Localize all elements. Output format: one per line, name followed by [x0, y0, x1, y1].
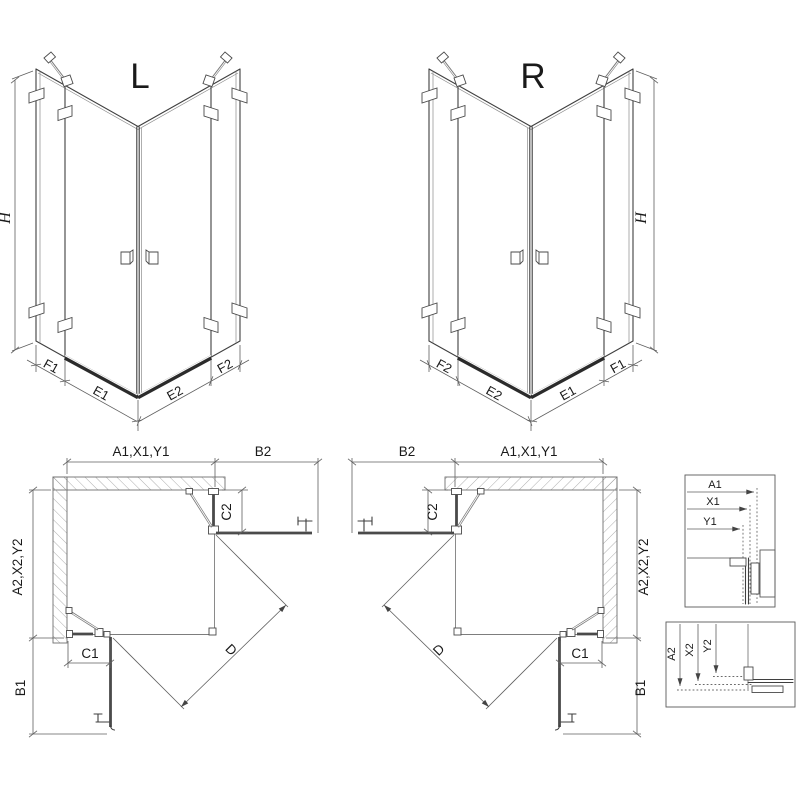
dim-label-c1: C1 — [571, 646, 588, 661]
dim-label-b1: B1 — [13, 680, 28, 697]
dim-label-c2: C2 — [425, 503, 440, 520]
dim-label-c1: C1 — [81, 646, 98, 661]
dim-label-f1: F1 — [608, 356, 629, 376]
dim-label-a2x2y2: A2,X2,Y2 — [10, 538, 25, 595]
dim-label-a1x1y1: A1,X1,Y1 — [112, 444, 169, 459]
detail-box-bottom: A2 X2 Y2 — [666, 622, 795, 707]
dim-label-a1x1y1: A1,X1,Y1 — [500, 444, 557, 459]
wall-profile-outline — [760, 550, 775, 597]
shower-enclosure-drawing: L H F1 E1 E2 F2 R H F2 E2 E1 F1 A1,X1,Y1… — [0, 0, 800, 800]
dim-label-c2: C2 — [219, 503, 234, 520]
dim-label-d: D — [222, 641, 240, 659]
detail-dim-x1: X1 — [706, 496, 719, 508]
variant-label-left: L — [130, 57, 149, 96]
dim-label-b1: B1 — [633, 680, 648, 697]
height-dim-label: H — [633, 211, 650, 225]
dim-label-d: D — [430, 641, 448, 659]
dim-label-e2: E2 — [484, 383, 505, 404]
detail-box-top: A1 X1 Y1 — [685, 475, 775, 607]
dim-label-b2: B2 — [255, 444, 272, 459]
dim-label-f1: F1 — [41, 356, 62, 376]
dim-label-b2: B2 — [399, 444, 416, 459]
dim-label-f2: F2 — [215, 356, 236, 376]
wall-profile-section — [751, 563, 759, 594]
technical-drawing-page: L H F1 E1 E2 F2 R H F2 E2 E1 F1 A1,X1,Y1… — [0, 0, 800, 800]
plan-view-right: B2 A1,X1,Y1 A2,X2,Y2 C2 C1 B1 D — [348, 444, 651, 737]
plan-view-left: A1,X1,Y1 B2 A2,X2,Y2 C2 C1 B1 D — [10, 444, 322, 737]
dim-label-f2: F2 — [434, 356, 455, 376]
iso-view-left: L H F1 E1 E2 F2 — [0, 52, 249, 431]
dim-label-e1: E1 — [91, 383, 112, 404]
detail-dim-y1: Y1 — [703, 516, 716, 528]
detail-dim-a2: A2 — [666, 647, 678, 660]
iso-view-right: R H F2 E2 E1 F1 — [420, 52, 658, 431]
dim-label-a2x2y2: A2,X2,Y2 — [636, 538, 651, 595]
profile-bracket-section — [730, 558, 746, 566]
dim-label-e2: E2 — [164, 383, 185, 404]
profile-bracket-section — [744, 667, 753, 680]
detail-dim-x2: X2 — [684, 643, 696, 656]
wall-profile-section — [752, 686, 783, 693]
detail-dim-a1: A1 — [708, 479, 721, 491]
height-dim-label: H — [0, 211, 14, 225]
dim-label-e1: E1 — [557, 383, 578, 404]
variant-label-right: R — [520, 57, 545, 96]
detail-dim-y2: Y2 — [702, 639, 714, 652]
